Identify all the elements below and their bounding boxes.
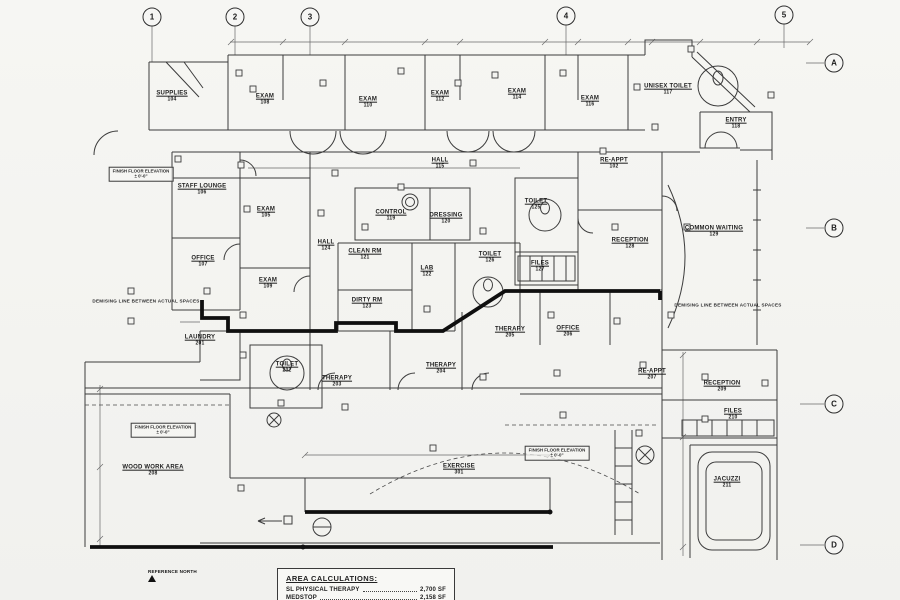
grid-bubble-4: 4 <box>557 7 576 26</box>
north-arrow-icon <box>148 575 156 582</box>
grid-bubble-a: A <box>825 54 844 73</box>
room-label-hall-115: HALL115 <box>432 158 449 171</box>
room-label-toilet-125: TOILET125 <box>525 199 547 212</box>
room-label-jacuzzi-211: JACUZZI211 <box>714 477 741 490</box>
finish-floor-elevation-box: FINISH FLOOR ELEVATION± 0'-0" <box>525 446 590 461</box>
room-label-exam-109: EXAM109 <box>259 278 277 291</box>
room-label-supplies-104: SUPPLIES104 <box>156 91 187 104</box>
grid-bubble-3: 3 <box>301 8 320 27</box>
room-label-therapy-203: THERAPY203 <box>322 376 352 389</box>
room-label-dressing-120: DRESSING120 <box>430 213 463 226</box>
grid-bubble-5: 5 <box>775 6 794 25</box>
reference-north-mark: REFERENCE NORTH <box>148 569 197 582</box>
room-label-reception-128: RECEPTION128 <box>612 238 649 251</box>
plan-note-demising-line-between-ac: DEMISING LINE BETWEEN ACTUAL SPACES <box>674 303 781 308</box>
room-label-clean-rm-121: CLEAN RM121 <box>348 249 381 262</box>
room-label-dirty-rm-123: DIRTY RM123 <box>352 298 383 311</box>
keynote-markers <box>128 46 774 491</box>
room-label-office-206: OFFICE206 <box>556 326 579 339</box>
room-label-lab-122: LAB122 <box>421 266 434 279</box>
plan-note-demising-line-between-ac: DEMISING LINE BETWEEN ACTUAL SPACES <box>92 299 199 304</box>
room-label-exam-110: EXAM110 <box>359 97 377 110</box>
room-label-staff-lounge-106: STAFF LOUNGE106 <box>178 184 227 197</box>
room-label-re-appt-207: RE-APPT207 <box>638 369 666 382</box>
room-label-wood-work-area-208: WOOD WORK AREA208 <box>122 465 183 478</box>
finish-floor-elevation-box: FINISH FLOOR ELEVATION± 0'-0" <box>109 167 174 182</box>
floor-plan-sheet: SUPPLIES104EXAM108EXAM110EXAM112EXAM114E… <box>0 0 900 600</box>
reference-north-label: REFERENCE NORTH <box>148 569 197 574</box>
area-calculations-table: AREA CALCULATIONS: SL PHYSICAL THERAPY2,… <box>277 568 455 600</box>
room-label-exam-116: EXAM116 <box>581 96 599 109</box>
room-label-therapy-204: THERAPY204 <box>426 363 456 376</box>
finish-floor-elevation-box: FINISH FLOOR ELEVATION± 0'-0" <box>131 423 196 438</box>
area-calculations-rows: SL PHYSICAL THERAPY2,700 SFMEDSTOP2,158 … <box>286 587 446 600</box>
room-label-control-119: CONTROL119 <box>375 210 406 223</box>
grid-bubble-2: 2 <box>226 8 245 27</box>
room-label-unisex-toilet-117: UNISEX TOILET117 <box>644 84 692 97</box>
grid-bubble-b: B <box>825 219 844 238</box>
room-label-exercise-301: EXERCISE301 <box>443 464 475 477</box>
room-label-files-210: FILES210 <box>724 409 742 422</box>
room-label-reception-209: RECEPTION209 <box>704 381 741 394</box>
room-label-therapy-205: THERAPY205 <box>495 327 525 340</box>
room-label-toilet-126: TOILET126 <box>479 252 501 265</box>
room-label-office-107: OFFICE107 <box>191 256 214 269</box>
area-calc-row-sl-physical-therapy: SL PHYSICAL THERAPY2,700 SF <box>286 587 446 593</box>
area-calculations-title: AREA CALCULATIONS: <box>286 574 446 583</box>
room-label-toilet-202: TOILET202 <box>276 362 298 375</box>
room-label-hall-124: HALL124 <box>318 240 335 253</box>
grid-bubble-1: 1 <box>143 8 162 27</box>
room-label-exam-112: EXAM112 <box>431 91 449 104</box>
room-label-entry-118: ENTRY118 <box>725 118 746 131</box>
room-label-files-127: FILES127 <box>531 261 549 274</box>
room-label-exam-105: EXAM105 <box>257 207 275 220</box>
area-calc-row-medstop: MEDSTOP2,158 SF <box>286 595 446 600</box>
grid-bubble-c: C <box>825 395 844 414</box>
room-label-common-waiting-129: COMMON WAITING129 <box>685 226 743 239</box>
room-label-exam-108: EXAM108 <box>256 94 274 107</box>
room-label-re-appt-102: RE-APPT102 <box>600 158 628 171</box>
grid-bubble-d: D <box>825 536 844 555</box>
room-label-laundry-201: LAUNDRY201 <box>185 335 216 348</box>
room-label-exam-114: EXAM114 <box>508 89 526 102</box>
